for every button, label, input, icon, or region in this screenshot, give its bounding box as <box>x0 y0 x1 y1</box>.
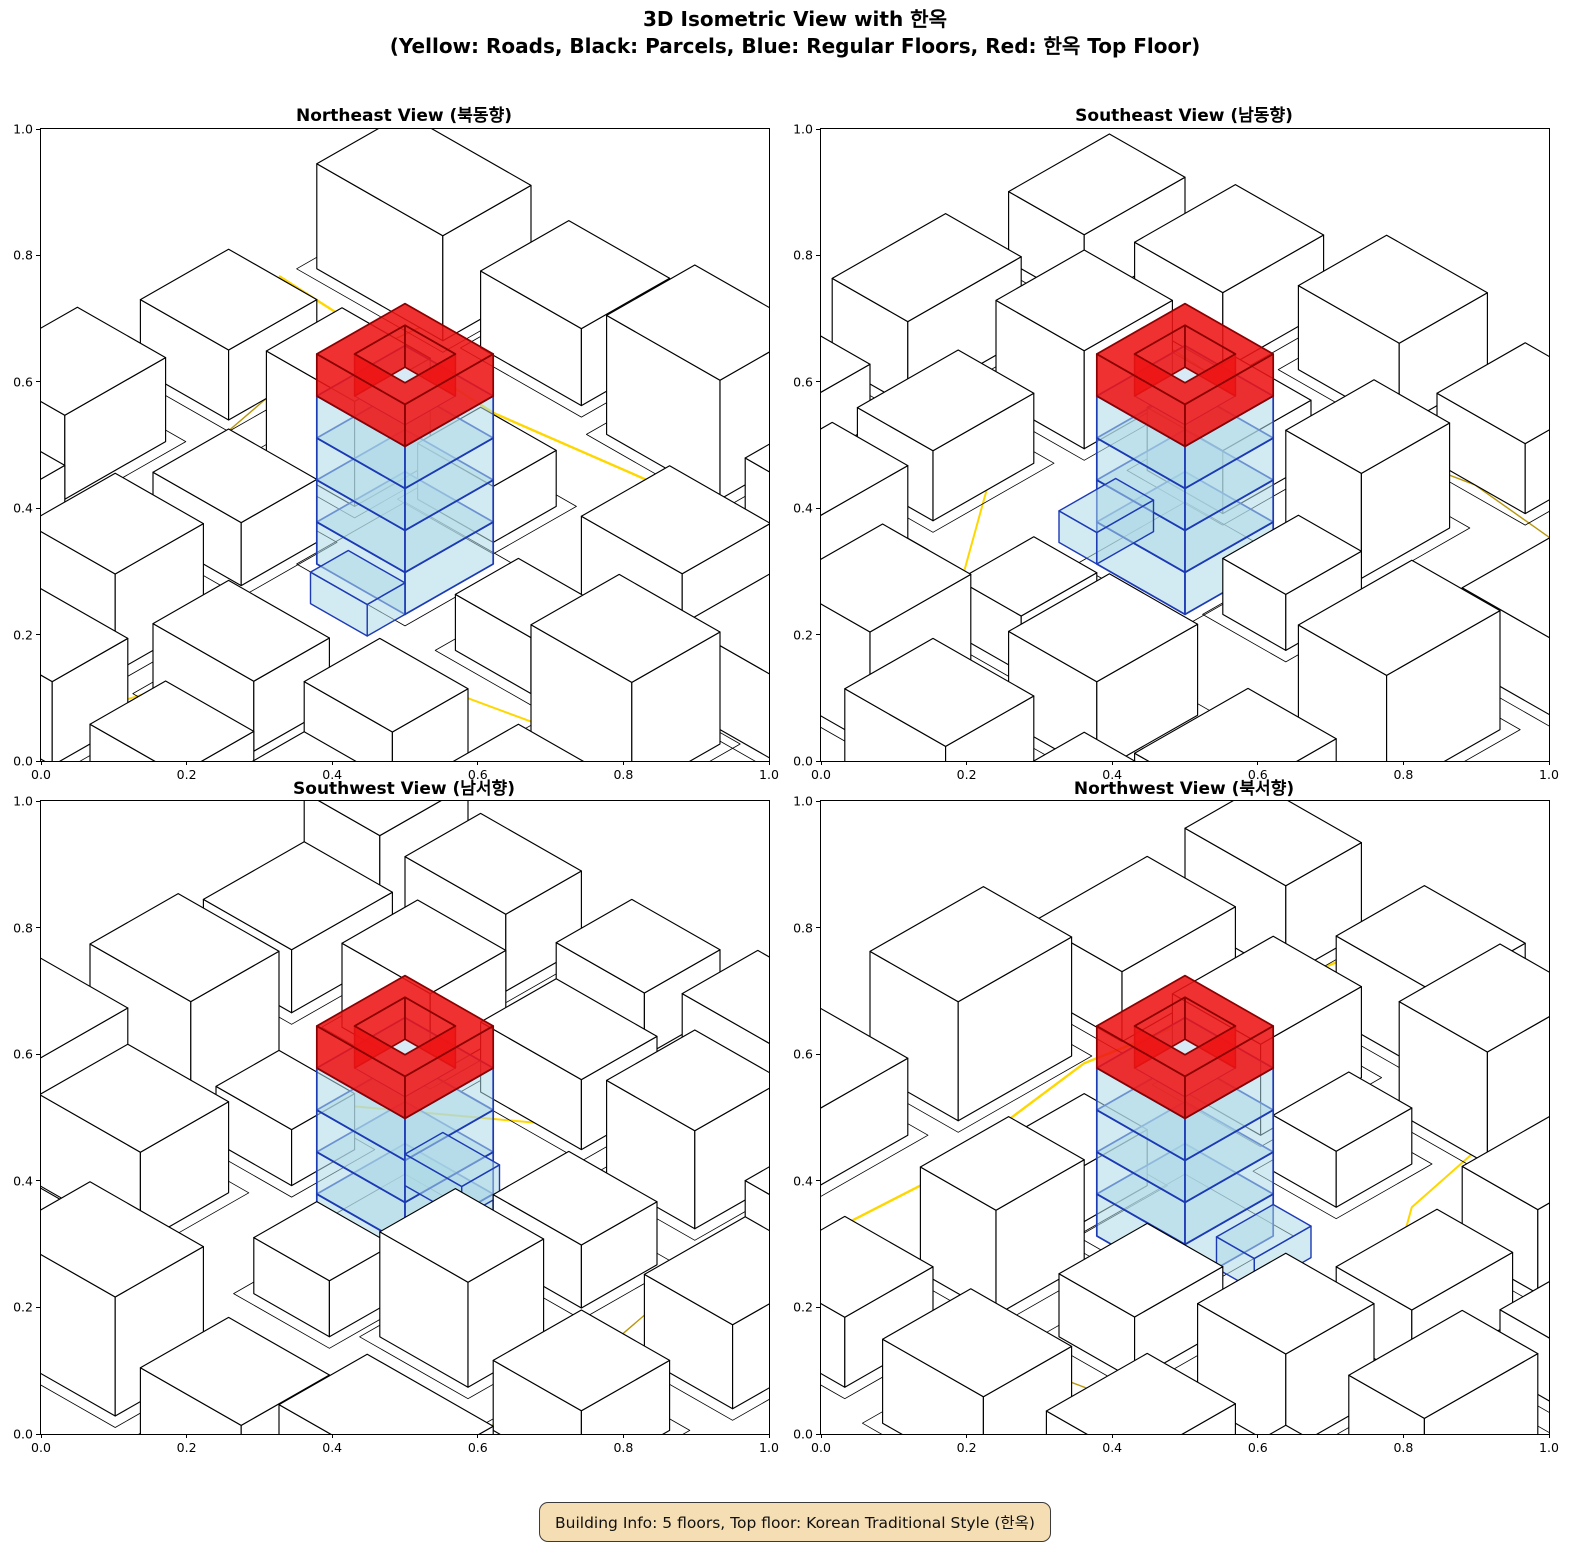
y-tick-label: 0.6 <box>0 374 33 389</box>
x-tick-label: 1.0 <box>759 1440 779 1455</box>
subplot-axes-northwest: 0.00.20.40.60.81.00.00.20.40.60.81.0 <box>820 800 1550 1435</box>
y-tickmark <box>36 1180 40 1181</box>
x-tickmark <box>332 1434 333 1438</box>
x-tickmark <box>1112 761 1113 765</box>
y-tick-label: 0.2 <box>779 627 813 642</box>
y-tickmark <box>36 1307 40 1308</box>
x-tickmark <box>477 1434 478 1438</box>
x-tick-label: 0.2 <box>957 767 977 782</box>
x-tick-label: 1.0 <box>759 767 779 782</box>
x-tick-label: 0.0 <box>811 767 831 782</box>
y-tick-label: 0.4 <box>779 501 813 516</box>
city-view-svg <box>821 801 1549 1434</box>
y-tickmark <box>36 927 40 928</box>
y-tickmark <box>816 1180 820 1181</box>
y-tickmark <box>36 129 40 130</box>
y-tick-label: 0.4 <box>0 501 33 516</box>
subplot-axes-southeast: 0.00.20.40.60.81.00.00.20.40.60.81.0 <box>820 128 1550 762</box>
y-tick-label: 0.8 <box>0 248 33 263</box>
y-tick-label: 0.4 <box>779 1173 813 1188</box>
subplot-axes-northeast: 0.00.20.40.60.81.00.00.20.40.60.81.0 <box>40 128 770 762</box>
y-tickmark <box>36 381 40 382</box>
x-tickmark <box>821 761 822 765</box>
y-tickmark <box>36 801 40 802</box>
x-tickmark <box>769 761 770 765</box>
y-tickmark <box>36 1434 40 1435</box>
subplot-title-southeast: Southeast View (남동향) <box>820 101 1548 123</box>
x-tickmark <box>332 761 333 765</box>
x-tickmark <box>1549 761 1550 765</box>
x-tickmark <box>1112 1434 1113 1438</box>
y-tick-label: 0.4 <box>0 1173 33 1188</box>
y-tick-label: 0.6 <box>779 374 813 389</box>
x-tickmark <box>477 761 478 765</box>
subplot-title-northeast: Northeast View (북동향) <box>40 101 768 123</box>
x-tick-label: 0.4 <box>1102 1440 1122 1455</box>
figure-canvas: 3D Isometric View with 한옥 (Yellow: Roads… <box>0 0 1590 1560</box>
city-view-svg <box>821 129 1549 761</box>
y-tick-label: 0.2 <box>779 1300 813 1315</box>
x-tickmark <box>821 1434 822 1438</box>
x-tick-label: 0.4 <box>322 1440 342 1455</box>
y-tickmark <box>36 1054 40 1055</box>
x-tick-label: 0.8 <box>613 767 633 782</box>
x-tick-label: 0.6 <box>468 767 488 782</box>
y-tick-label: 1.0 <box>0 794 33 809</box>
y-tickmark <box>816 634 820 635</box>
x-tick-label: 0.0 <box>31 1440 51 1455</box>
y-tickmark <box>36 634 40 635</box>
y-tick-label: 0.6 <box>779 1047 813 1062</box>
y-tickmark <box>816 927 820 928</box>
x-tick-label: 0.8 <box>1393 767 1413 782</box>
x-tick-label: 1.0 <box>1539 1440 1559 1455</box>
y-tick-label: 0.6 <box>0 1047 33 1062</box>
y-tickmark <box>816 761 820 762</box>
y-tickmark <box>816 129 820 130</box>
subplot-axes-southwest: 0.00.20.40.60.81.00.00.20.40.60.81.0 <box>40 800 770 1435</box>
y-tick-label: 0.0 <box>0 1427 33 1442</box>
y-tickmark <box>36 761 40 762</box>
y-tick-label: 0.8 <box>779 920 813 935</box>
x-tick-label: 0.6 <box>1248 767 1268 782</box>
y-tick-label: 0.8 <box>779 248 813 263</box>
y-tick-label: 0.2 <box>0 627 33 642</box>
y-tickmark <box>816 801 820 802</box>
x-tick-label: 0.2 <box>177 767 197 782</box>
x-tick-label: 0.0 <box>811 1440 831 1455</box>
x-tickmark <box>623 1434 624 1438</box>
y-tick-label: 0.0 <box>779 1427 813 1442</box>
figure-title-line1: 3D Isometric View with 한옥 <box>0 6 1590 33</box>
figure-title-line2: (Yellow: Roads, Black: Parcels, Blue: Re… <box>0 33 1590 60</box>
y-tick-label: 0.8 <box>0 920 33 935</box>
subplot-title-northwest: Northwest View (북서향) <box>820 774 1548 796</box>
y-tickmark <box>816 381 820 382</box>
x-tick-label: 0.2 <box>177 1440 197 1455</box>
y-tick-label: 1.0 <box>779 794 813 809</box>
y-tickmark <box>36 508 40 509</box>
x-tick-label: 0.0 <box>31 767 51 782</box>
x-tick-label: 0.6 <box>1248 1440 1268 1455</box>
y-tick-label: 0.0 <box>0 754 33 769</box>
x-tickmark <box>966 1434 967 1438</box>
x-tick-label: 1.0 <box>1539 767 1559 782</box>
x-tick-label: 0.4 <box>1102 767 1122 782</box>
y-tickmark <box>816 1054 820 1055</box>
x-tickmark <box>1403 1434 1404 1438</box>
city-view-svg <box>41 129 769 761</box>
subplot-title-southwest: Southwest View (남서향) <box>40 774 768 796</box>
figure-title: 3D Isometric View with 한옥 (Yellow: Roads… <box>0 6 1590 60</box>
y-tick-label: 1.0 <box>779 122 813 137</box>
x-tick-label: 0.4 <box>322 767 342 782</box>
y-tickmark <box>816 1307 820 1308</box>
y-tick-label: 0.0 <box>779 754 813 769</box>
x-tickmark <box>1403 761 1404 765</box>
x-tickmark <box>41 1434 42 1438</box>
y-tick-label: 0.2 <box>0 1300 33 1315</box>
x-tickmark <box>966 761 967 765</box>
y-tick-label: 1.0 <box>0 122 33 137</box>
x-tickmark <box>769 1434 770 1438</box>
x-tickmark <box>186 1434 187 1438</box>
x-tickmark <box>186 761 187 765</box>
x-tickmark <box>1257 761 1258 765</box>
x-tickmark <box>1257 1434 1258 1438</box>
x-tickmark <box>623 761 624 765</box>
x-tick-label: 0.8 <box>1393 1440 1413 1455</box>
x-tick-label: 0.6 <box>468 1440 488 1455</box>
city-view-svg <box>41 801 769 1434</box>
x-tick-label: 0.2 <box>957 1440 977 1455</box>
building-info-box: Building Info: 5 floors, Top floor: Kore… <box>539 1502 1051 1542</box>
x-tick-label: 0.8 <box>613 1440 633 1455</box>
y-tickmark <box>816 1434 820 1435</box>
x-tickmark <box>1549 1434 1550 1438</box>
y-tickmark <box>816 508 820 509</box>
y-tickmark <box>816 255 820 256</box>
y-tickmark <box>36 255 40 256</box>
x-tickmark <box>41 761 42 765</box>
